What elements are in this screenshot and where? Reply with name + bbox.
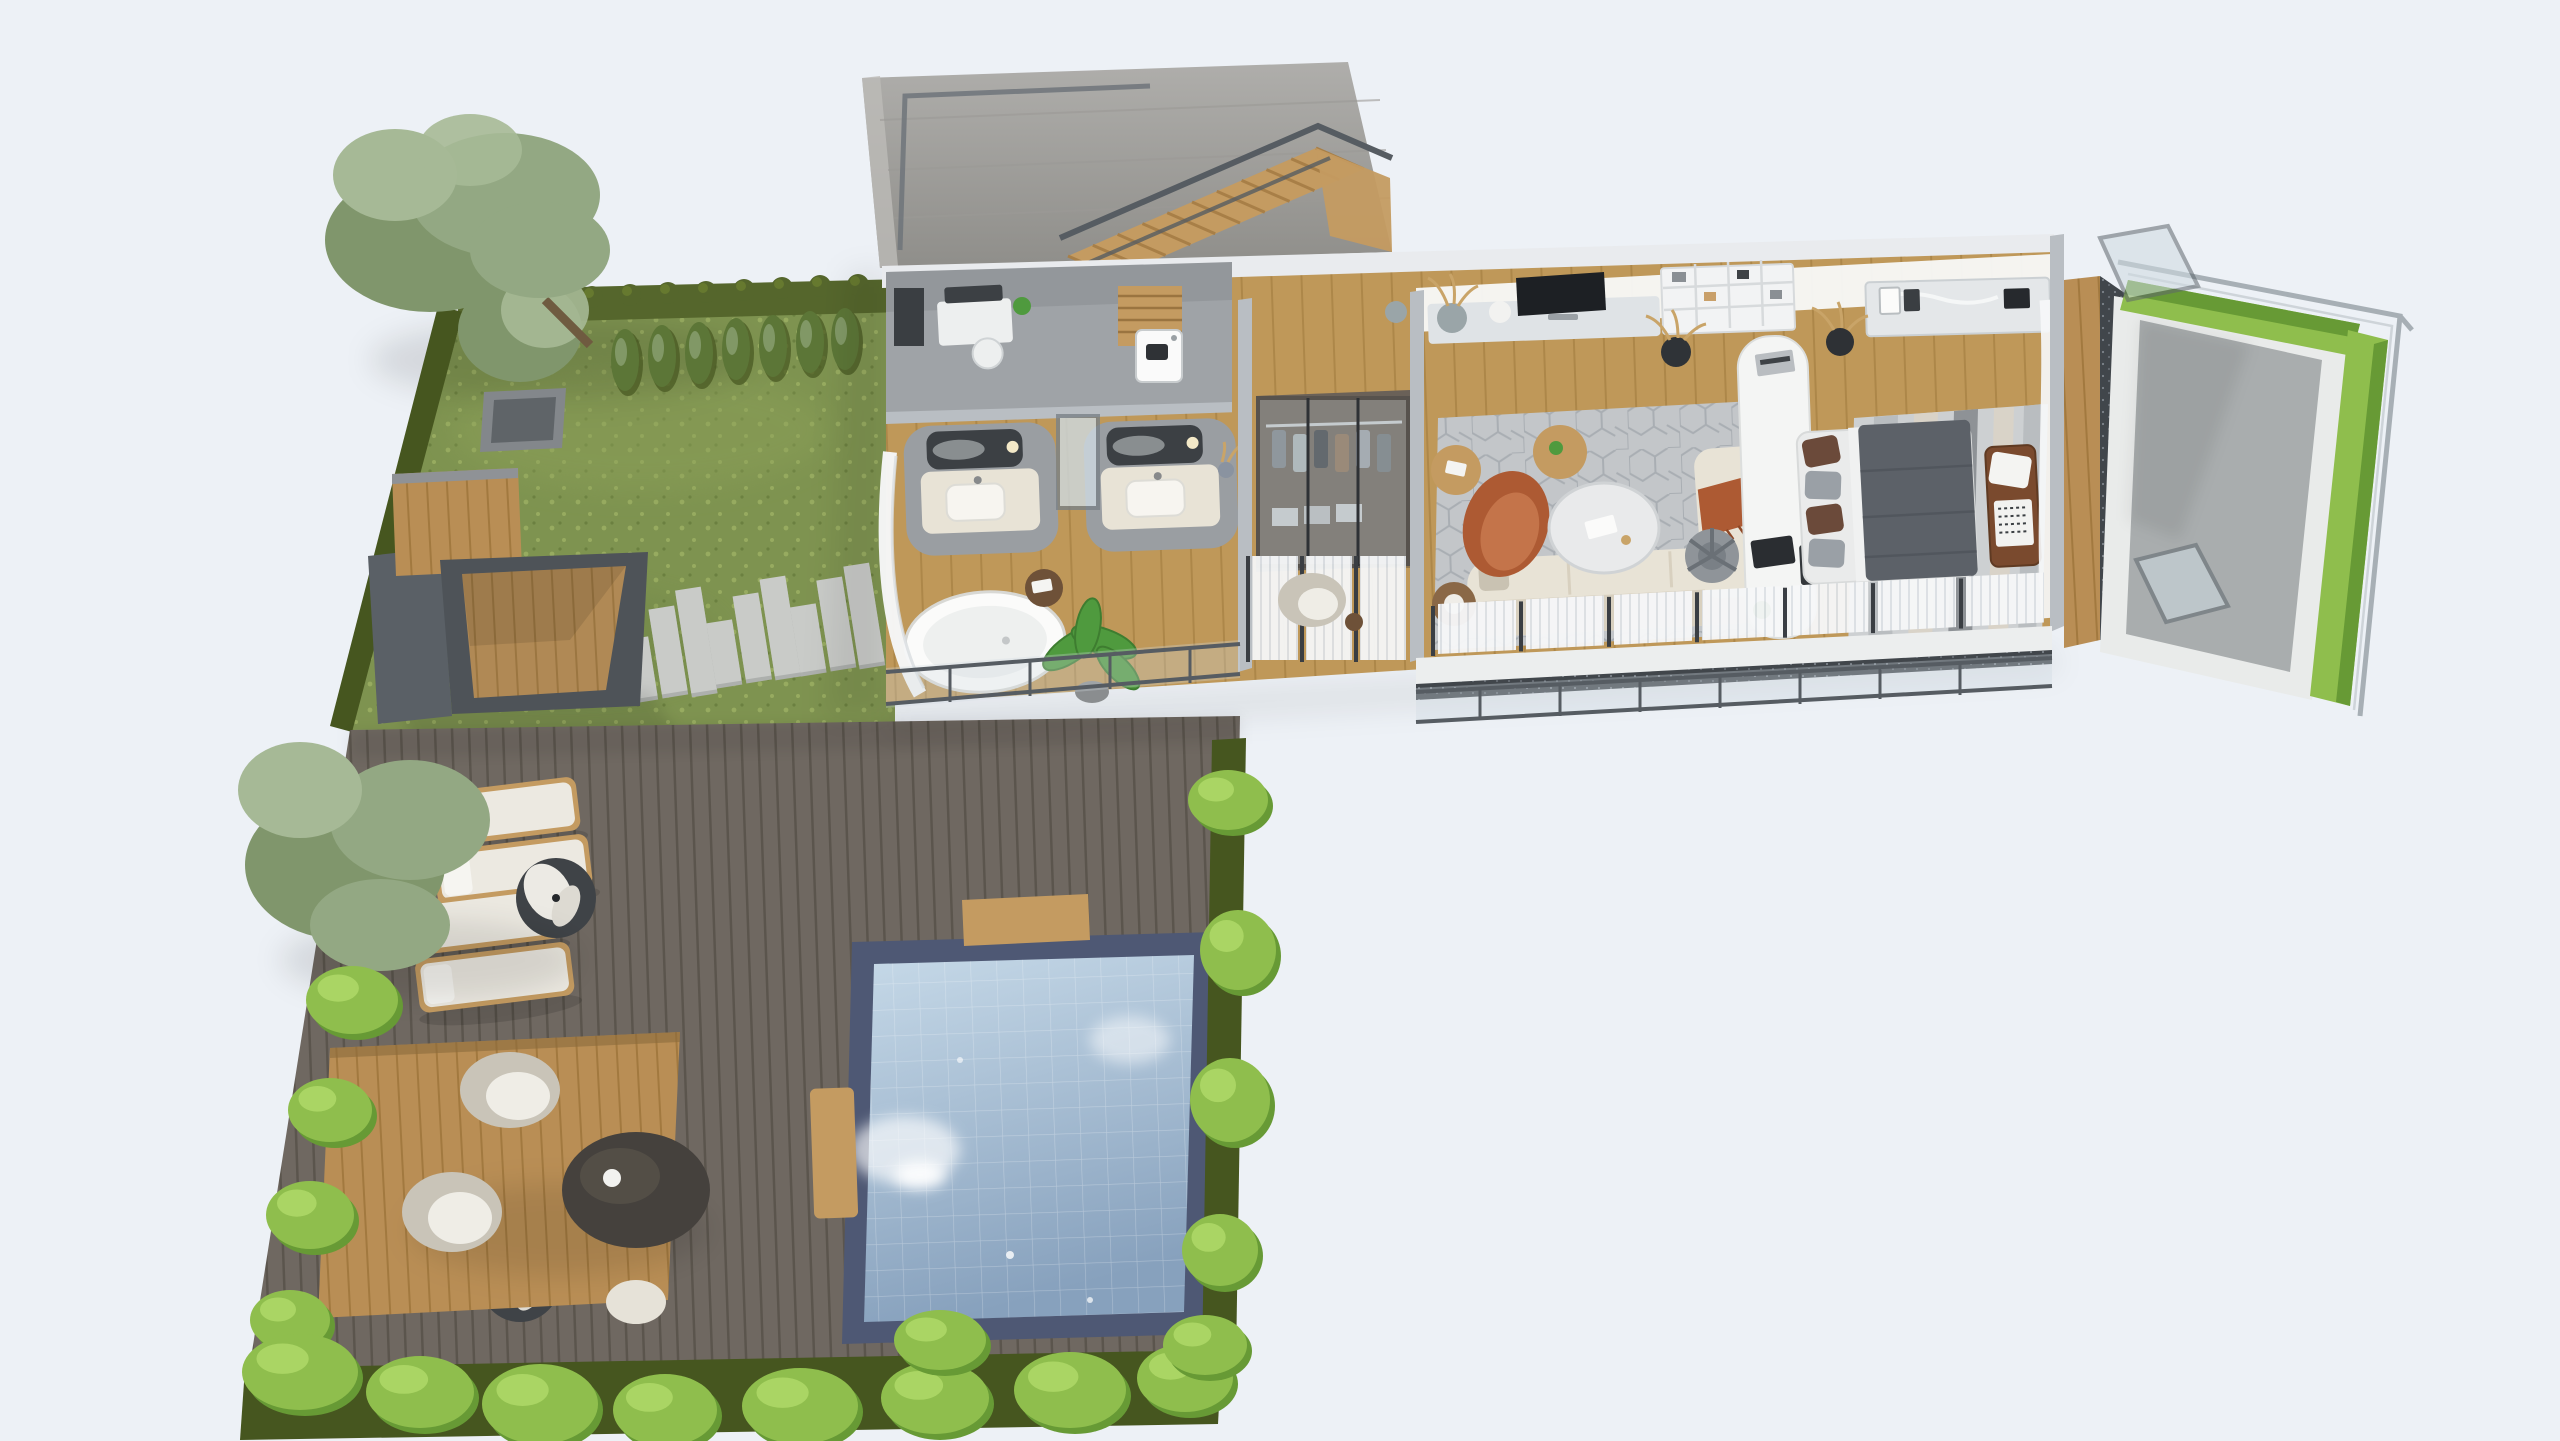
- curtain-panel: [1360, 556, 1406, 660]
- terrace-walkway-wood: [2064, 276, 2100, 648]
- bookshelf: [1661, 260, 1795, 334]
- hedge-bump: [695, 281, 717, 303]
- poolside-table: [962, 894, 1090, 946]
- coffee-table: [1549, 483, 1659, 573]
- console-sculpture: [1489, 301, 1511, 323]
- bedroom-curtain-east: [2045, 300, 2048, 618]
- hall-vase: [1385, 301, 1407, 323]
- curtain-panel: [1614, 591, 1692, 645]
- bathroom-window: [1058, 416, 1098, 508]
- pool-glare: [1090, 1016, 1170, 1064]
- bed: [1796, 420, 1978, 585]
- wood-deck-area: [238, 716, 1281, 1441]
- side-table: [1431, 445, 1481, 495]
- hedge-bump: [619, 284, 641, 306]
- vanity-pod: [903, 421, 1059, 556]
- curtain-panel: [1878, 577, 1956, 631]
- dresser-console: [1865, 278, 2050, 337]
- scene-svg: [0, 0, 2560, 1441]
- wall-east: [2050, 234, 2064, 632]
- curtain-panel: [1966, 572, 2044, 626]
- outdoor-stool: [606, 1280, 666, 1324]
- side-table-tub: [1025, 569, 1063, 607]
- washing-machine: [1136, 330, 1182, 382]
- closet-glass-front: [1258, 398, 1408, 566]
- pool-bench: [810, 1087, 859, 1218]
- hedge-bump: [771, 277, 793, 299]
- curtain-panel: [1438, 600, 1516, 654]
- storage-shelf: [894, 288, 924, 346]
- hedge-bump: [657, 282, 679, 304]
- outdoor-seating-platform: [318, 1032, 710, 1324]
- wall-closet-living: [1410, 290, 1424, 662]
- curtain-panel: [1702, 586, 1780, 640]
- pool-glare: [894, 1161, 946, 1189]
- swimming-pool: [842, 932, 1216, 1344]
- concrete-stair-hall: [862, 62, 1392, 277]
- curtain-panel: [1790, 582, 1868, 636]
- vanity-pod: [1083, 417, 1239, 552]
- hedge-bump: [809, 275, 831, 297]
- curtain-panel: [1526, 595, 1604, 649]
- table-cup: [603, 1169, 621, 1187]
- hedge-bump: [733, 279, 755, 301]
- round-wood-table: [1533, 425, 1587, 479]
- vanity-plant: [1013, 297, 1031, 315]
- bed-bench: [1985, 445, 2041, 567]
- vase-flowers: [1218, 462, 1234, 478]
- utility-room: [886, 262, 1232, 420]
- wicker-chair: [460, 1052, 560, 1128]
- laptop: [1750, 535, 1795, 569]
- wicker-chair: [402, 1172, 502, 1252]
